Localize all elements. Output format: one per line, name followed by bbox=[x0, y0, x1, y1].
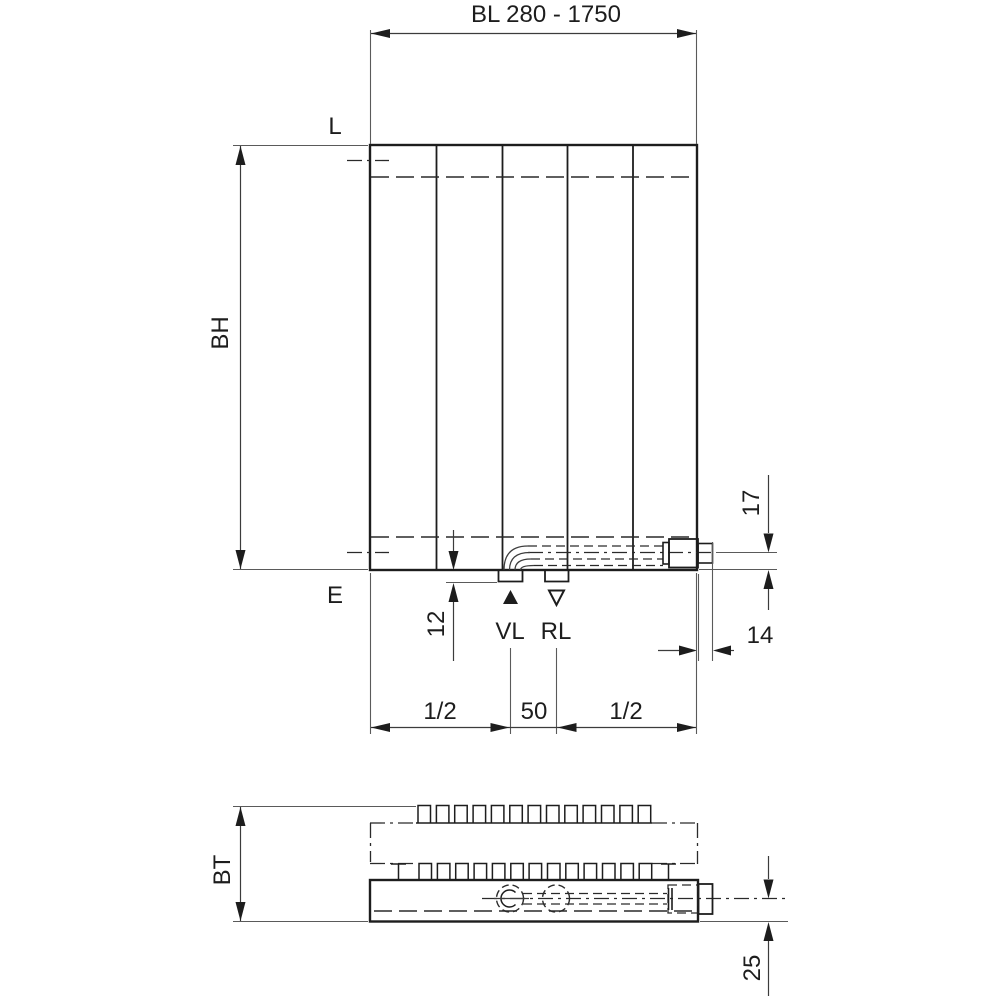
side-connection-fitting bbox=[663, 539, 713, 568]
pipe-depth-label: 25 bbox=[739, 955, 766, 982]
drawing-canvas: BL 280 - 1750 BH L E 12 17 14 bbox=[0, 0, 1000, 1000]
dim-pipe-depth-25: 25 bbox=[700, 856, 788, 996]
flow-triangle-icon bbox=[503, 590, 518, 604]
radiator-panel-outline bbox=[370, 145, 697, 570]
top-left-label: L bbox=[328, 113, 341, 140]
fin bbox=[418, 806, 431, 824]
stub-offset-label: 12 bbox=[423, 611, 450, 638]
fins-row-bottom bbox=[419, 864, 652, 881]
fin bbox=[565, 806, 578, 824]
fin bbox=[456, 864, 469, 881]
fin bbox=[584, 864, 597, 881]
fin bbox=[510, 806, 523, 824]
fin bbox=[639, 864, 652, 881]
height-label: BH bbox=[207, 316, 234, 349]
flow-label: VL bbox=[495, 618, 524, 645]
fin bbox=[638, 806, 651, 824]
fin bbox=[547, 806, 560, 824]
dim-pipe-height-17: 17 bbox=[699, 475, 777, 610]
fin bbox=[603, 864, 616, 881]
front-view bbox=[347, 145, 714, 582]
flow-return-markers: VL RL bbox=[495, 590, 571, 645]
fin bbox=[511, 864, 524, 881]
panel-section-outline bbox=[370, 880, 698, 922]
fin bbox=[602, 806, 615, 824]
internal-pipes bbox=[504, 546, 663, 570]
connection-spacing-label: 50 bbox=[521, 698, 548, 725]
dim-connection-chain: 1/2 50 1/2 bbox=[371, 573, 697, 734]
flow-connection-stub bbox=[499, 570, 523, 582]
fin bbox=[528, 806, 541, 824]
fin bbox=[620, 806, 633, 824]
half-left-label: 1/2 bbox=[423, 698, 456, 725]
dim-stub-offset-12: 12 bbox=[423, 530, 497, 661]
fin bbox=[455, 806, 468, 824]
fins-row-top bbox=[418, 806, 651, 824]
bottom-view bbox=[370, 806, 788, 922]
fin bbox=[419, 864, 432, 881]
return-triangle-icon bbox=[549, 591, 564, 606]
phantom-second-panel bbox=[370, 823, 698, 864]
fin bbox=[473, 806, 486, 824]
fin bbox=[437, 864, 450, 881]
fin bbox=[491, 806, 504, 824]
pipe-height-label: 17 bbox=[738, 490, 765, 517]
half-right-label: 1/2 bbox=[609, 698, 642, 725]
return-connection-stub bbox=[545, 570, 569, 582]
fin bbox=[492, 864, 505, 881]
fin bbox=[621, 864, 634, 881]
dim-height-bh: BH bbox=[207, 146, 368, 570]
fin bbox=[436, 806, 449, 824]
dim-overall-length: BL 280 - 1750 bbox=[371, 1, 697, 144]
fin bbox=[583, 806, 596, 824]
depth-label: BT bbox=[209, 854, 236, 885]
panel-divider-lines bbox=[437, 145, 634, 570]
dim-stub-protrusion-14: 14 bbox=[658, 542, 773, 661]
fin bbox=[529, 864, 542, 881]
fin bbox=[474, 864, 487, 881]
overall-length-label: BL 280 - 1750 bbox=[471, 1, 621, 28]
stub-protrusion-label: 14 bbox=[747, 622, 774, 649]
radiator-dimension-drawing: BL 280 - 1750 BH L E 12 17 14 bbox=[0, 0, 1000, 1000]
fin bbox=[566, 864, 579, 881]
return-label: RL bbox=[541, 618, 572, 645]
bottom-left-label: E bbox=[327, 582, 343, 609]
fin bbox=[548, 864, 561, 881]
